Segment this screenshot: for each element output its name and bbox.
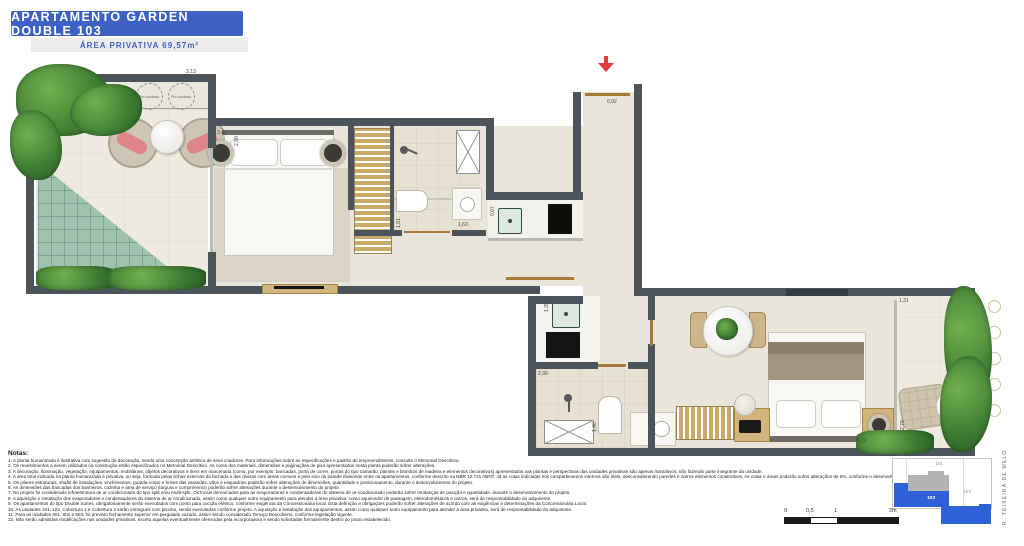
floorplan-page: ÁREA PRIVATIVA 69,57m² APARTAMENTO GARDE…	[0, 0, 1024, 546]
dim-label: 2,90	[234, 136, 240, 146]
entry-arrow	[604, 56, 608, 63]
entry-door	[585, 93, 630, 96]
plant-cluster	[36, 266, 116, 290]
bed-2-blanket-band	[768, 342, 864, 354]
scale-segment	[837, 518, 898, 523]
dim-label: 3,41	[217, 130, 227, 136]
note-line: 4. A área total indicada na planta human…	[8, 474, 958, 479]
dim-label: 2,30	[538, 371, 548, 377]
wall	[208, 252, 216, 294]
tv	[274, 286, 324, 289]
dim-label: 1,39	[544, 302, 550, 312]
cooktop	[548, 204, 572, 234]
bed-1-headboard	[222, 130, 334, 135]
dim-label: 2,79	[900, 420, 906, 430]
ac-unit	[786, 289, 848, 296]
wall	[628, 362, 655, 369]
keyplan-unit-103-shape	[979, 504, 991, 524]
pillow	[776, 400, 816, 428]
wall	[208, 118, 494, 126]
table-plant	[716, 318, 738, 340]
wall	[208, 74, 216, 148]
vertical-garden	[940, 356, 992, 452]
wall	[528, 296, 583, 304]
wall	[528, 296, 536, 456]
scale-label: 0,5	[806, 508, 814, 514]
shaft	[456, 130, 480, 174]
entry-corridor-floor	[583, 92, 635, 296]
washer	[546, 332, 580, 358]
wall	[452, 230, 486, 236]
round-table	[150, 120, 184, 154]
condenser-label: Pto condens.	[139, 95, 160, 99]
wall	[648, 296, 655, 320]
area-label: ÁREA PRIVATIVA 69,57m²	[80, 41, 199, 50]
bedroom2-door	[650, 320, 653, 346]
keyplan-unit-101-label: 101	[935, 462, 943, 467]
keyplan-gridline	[963, 459, 964, 508]
dim-label: 3,13	[186, 69, 196, 75]
keyplan: 101 102 103	[892, 458, 992, 509]
wall	[486, 192, 583, 200]
keyplan-unit-103-label: 103	[927, 496, 935, 501]
bed-2-headboard	[766, 436, 866, 442]
shaft	[544, 420, 594, 444]
bed-1-fold	[224, 168, 332, 170]
wall	[486, 118, 494, 200]
bench	[676, 406, 734, 440]
condenser-label: Pto condens.	[171, 95, 192, 99]
apartment-title: APARTAMENTO GARDEN DOUBLE 103	[11, 10, 243, 38]
entry-arrow-head	[598, 63, 614, 72]
pillow	[821, 400, 861, 428]
terrace-glass-door	[210, 148, 213, 254]
vanity-sink	[460, 197, 475, 212]
dim-label: 1,40	[592, 422, 598, 432]
laptop	[739, 420, 761, 433]
laundry-sink	[552, 300, 580, 328]
dim-label: 1,63	[458, 222, 468, 228]
wall	[634, 84, 642, 296]
wall	[573, 92, 581, 192]
bath2-door	[598, 364, 626, 367]
scale-label: 1	[834, 508, 837, 514]
keyplan-unit-101-shape	[928, 471, 944, 476]
wall	[354, 230, 402, 236]
toilet-2	[598, 396, 622, 434]
dome-lamp	[734, 394, 756, 416]
shower-arm-2	[568, 400, 570, 412]
dim-label: 1,31	[899, 298, 909, 304]
dim-label: 4,22	[856, 438, 866, 444]
dim-label: 0,67	[490, 206, 496, 216]
street-name: R. TEIXEIRA DE MELO	[1002, 449, 1008, 525]
scale-segment	[811, 518, 837, 523]
balcony-glass-door	[894, 300, 897, 446]
wall	[536, 362, 598, 369]
scale-label: 0	[784, 508, 787, 514]
dim-label: 0,92	[607, 99, 617, 105]
vanity-1	[452, 188, 482, 220]
wall	[648, 344, 655, 456]
trellis	[988, 300, 1001, 313]
condenser-spot: Pto condens.	[168, 83, 195, 110]
wall	[390, 126, 394, 232]
apartment-title-box: APARTAMENTO GARDEN DOUBLE 103	[11, 11, 243, 36]
plant-cluster	[108, 266, 206, 290]
scale-bar-track	[784, 517, 899, 524]
area-bar: ÁREA PRIVATIVA 69,57m²	[31, 38, 248, 52]
notes-heading: Notas:	[8, 450, 958, 457]
nightstand-lamp	[320, 140, 346, 166]
vanity-sink	[653, 421, 670, 437]
scale-bar: 0 0,5 1 2m	[784, 508, 904, 530]
wall	[348, 126, 354, 210]
scale-segment	[785, 518, 811, 523]
kitchen-sink	[498, 208, 522, 234]
hall-door	[506, 277, 574, 280]
keyplan-unit-102-label: 102	[963, 490, 971, 495]
dim-label: 1,91	[396, 218, 402, 228]
toilet-1	[396, 190, 428, 212]
bath1-door	[404, 231, 450, 233]
keyplan-unit-103-shape	[894, 483, 908, 507]
